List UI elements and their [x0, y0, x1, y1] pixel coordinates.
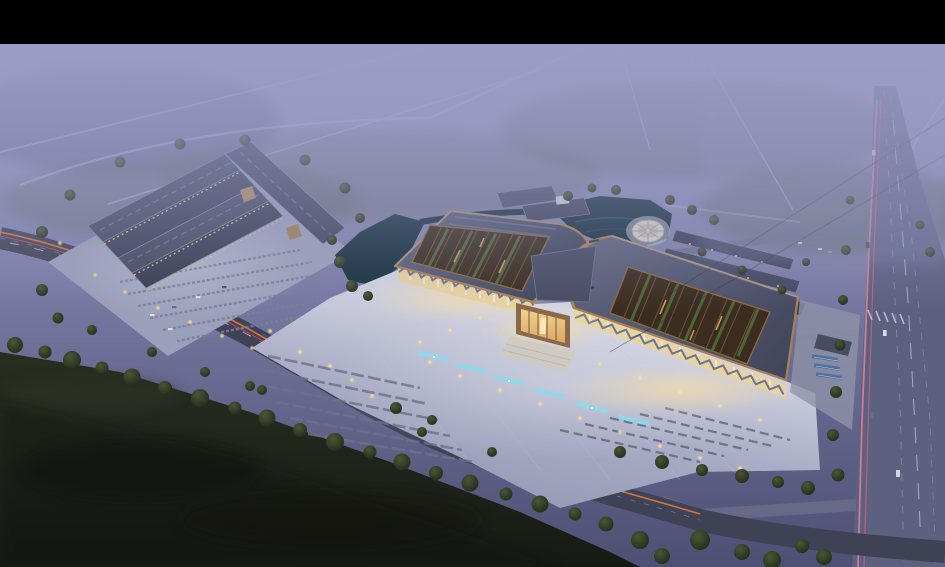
lamp: [349, 377, 355, 383]
lamp: [657, 443, 663, 449]
fog-patch-right: [700, 44, 945, 264]
tree: [96, 362, 109, 375]
lamp: [617, 429, 623, 435]
lamp: [457, 373, 463, 379]
tree: [364, 446, 377, 459]
lamp: [297, 349, 303, 355]
tree: [63, 351, 81, 369]
tree: [394, 454, 411, 471]
tree: [462, 475, 479, 492]
fountain-sparkle: [433, 356, 435, 358]
tree: [293, 423, 307, 437]
tree: [696, 464, 708, 476]
lamp: [267, 328, 273, 334]
lamp: [537, 401, 543, 407]
tree: [429, 466, 443, 480]
tree: [390, 402, 402, 414]
tree: [795, 539, 809, 553]
lamp: [497, 387, 503, 393]
rendering-frame: [0, 0, 945, 567]
tree: [599, 517, 614, 532]
tree: [326, 433, 344, 451]
car: [870, 412, 874, 418]
tree: [53, 313, 64, 324]
tree: [734, 544, 750, 560]
tree: [816, 549, 832, 565]
tree: [147, 347, 157, 357]
tree: [259, 410, 276, 427]
tree: [427, 415, 437, 425]
car: [168, 328, 173, 330]
tree: [830, 386, 842, 398]
car: [883, 330, 887, 336]
tree: [569, 508, 582, 521]
tree: [500, 488, 513, 501]
tree: [772, 476, 784, 488]
tree: [532, 496, 549, 513]
lamp: [577, 415, 583, 421]
tree: [690, 530, 710, 550]
tree: [631, 531, 649, 549]
gate-bright-panel: [540, 318, 547, 334]
lamp: [187, 319, 192, 324]
tree: [832, 469, 845, 482]
tree: [735, 469, 749, 483]
letterbox-bar: [0, 0, 945, 44]
car: [150, 314, 155, 316]
tree: [39, 346, 52, 359]
tree: [229, 402, 242, 415]
lamp: [327, 363, 333, 369]
tree: [191, 389, 209, 407]
lamp: [447, 327, 453, 333]
tree: [614, 446, 626, 458]
tree: [827, 429, 839, 441]
tree: [200, 367, 210, 377]
fountain-sparkle: [508, 380, 510, 382]
car: [896, 470, 900, 477]
lamp: [369, 393, 375, 399]
lamp: [417, 339, 423, 345]
tree: [87, 325, 97, 335]
lamp: [219, 333, 224, 338]
tree: [655, 455, 669, 469]
tree: [835, 340, 846, 351]
tree: [417, 427, 427, 437]
tree: [487, 447, 497, 457]
tree: [654, 548, 670, 564]
tree: [801, 481, 815, 495]
solar-panels: [812, 354, 842, 380]
tree: [7, 337, 23, 353]
tree: [245, 381, 255, 391]
tree: [257, 385, 267, 395]
aerial-rendering: [0, 0, 945, 567]
tree: [158, 381, 172, 395]
lamp: [757, 417, 763, 423]
lamp: [427, 359, 433, 365]
lamp: [697, 455, 703, 461]
lamp: [597, 361, 603, 367]
tree: [124, 369, 141, 386]
car: [210, 312, 215, 314]
